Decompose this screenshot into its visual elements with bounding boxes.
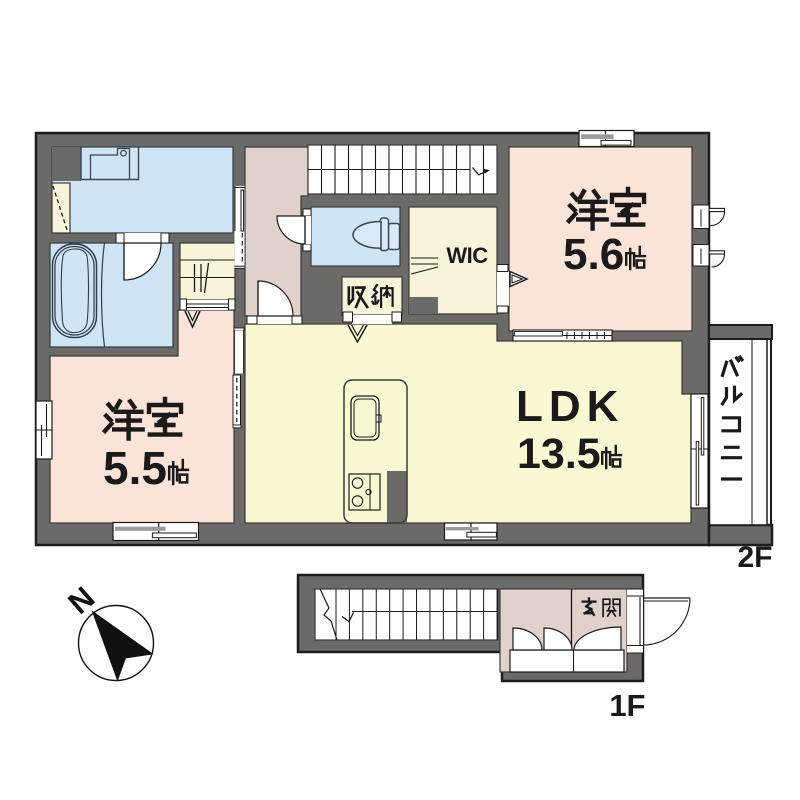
svg-text:1F: 1F (609, 688, 645, 723)
svg-text:LDK: LDK (516, 382, 624, 431)
svg-text:2F: 2F (737, 541, 772, 574)
svg-text:WIC: WIC (446, 243, 488, 268)
svg-text:13.5: 13.5 (517, 430, 601, 478)
svg-text:5.6: 5.6 (563, 230, 624, 279)
svg-text:5.5: 5.5 (103, 442, 167, 494)
